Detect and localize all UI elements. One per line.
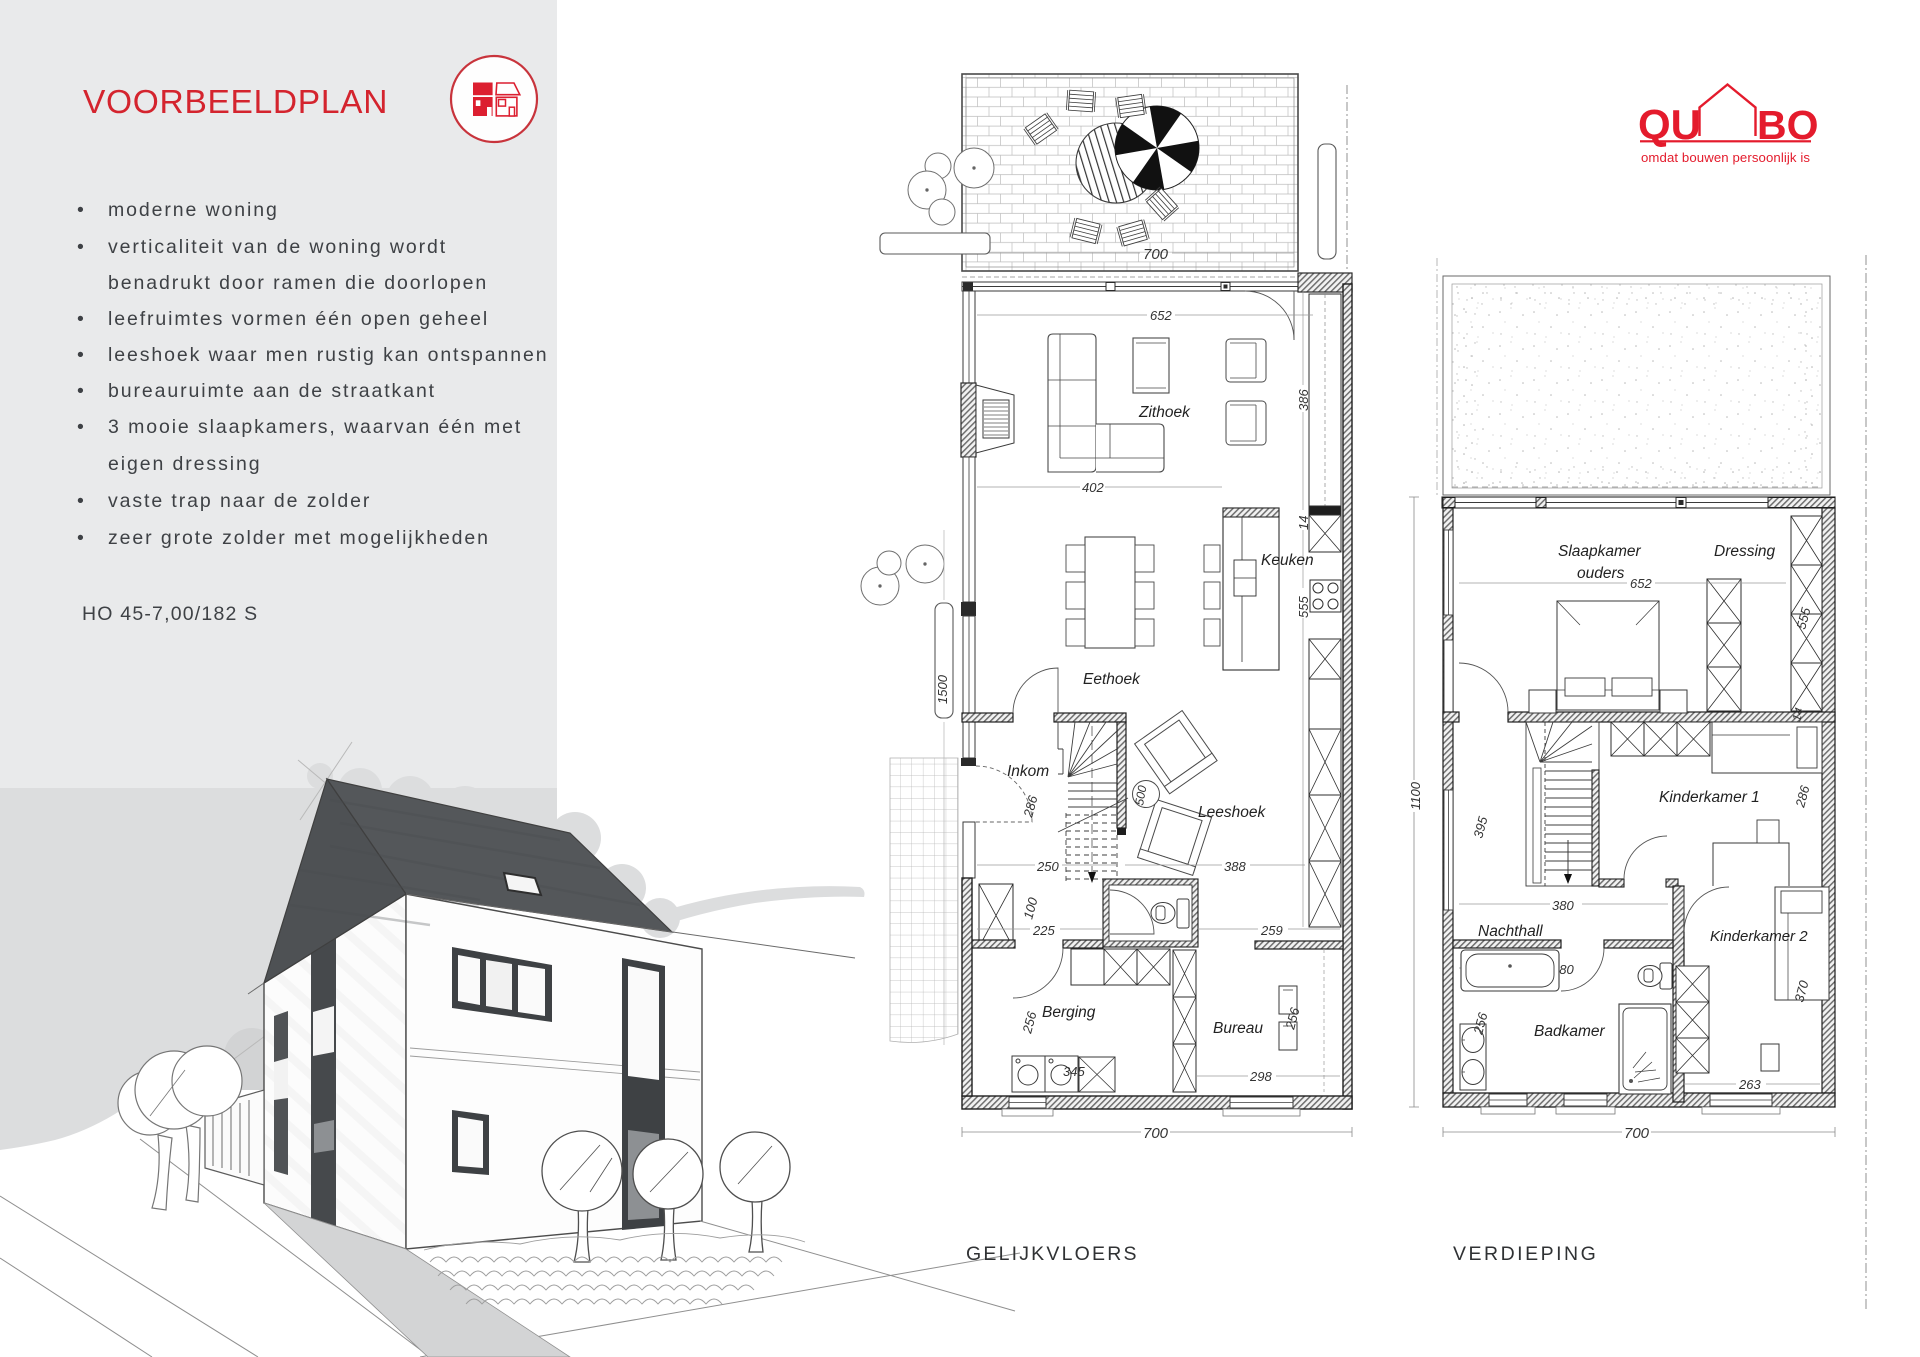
svg-text:386: 386 [1296, 389, 1311, 411]
svg-text:250: 250 [1036, 859, 1059, 874]
svg-text:HO 45-7,00/182 S: HO 45-7,00/182 S [82, 603, 258, 625]
svg-text:286: 286 [1792, 783, 1813, 810]
svg-text:•: • [77, 416, 86, 438]
svg-text:•: • [77, 527, 86, 549]
svg-text:GELIJKVLOERS: GELIJKVLOERS [966, 1243, 1139, 1265]
svg-text:verticaliteit van de woning wo: verticaliteit van de woning wordt [108, 236, 447, 258]
svg-text:zeer grote zolder met mogelijk: zeer grote zolder met mogelijkheden [108, 527, 490, 549]
svg-text:omdat bouwen persoonlijk is: omdat bouwen persoonlijk is [1641, 150, 1810, 165]
svg-text:VOORBEELDPLAN: VOORBEELDPLAN [83, 84, 388, 121]
svg-text:•: • [77, 236, 86, 258]
svg-text:259: 259 [1260, 923, 1283, 938]
svg-text:700: 700 [1143, 246, 1169, 263]
svg-text:•: • [77, 308, 86, 330]
svg-text:555: 555 [1296, 596, 1311, 618]
svg-text:leefruimtes vormen één open ge: leefruimtes vormen één open geheel [108, 308, 489, 330]
svg-text:Slaapkamer: Slaapkamer [1558, 543, 1642, 560]
svg-text:Nachthall: Nachthall [1478, 923, 1543, 940]
svg-text:ouders: ouders [1577, 565, 1625, 582]
svg-text:•: • [77, 199, 86, 221]
svg-text:Inkom: Inkom [1007, 763, 1049, 780]
svg-text:Leeshoek: Leeshoek [1198, 804, 1266, 821]
svg-text:bureauruimte aan de straatkant: bureauruimte aan de straatkant [108, 380, 436, 402]
svg-text:652: 652 [1630, 576, 1652, 591]
svg-text:1100: 1100 [1408, 781, 1423, 810]
svg-text:345: 345 [1063, 1064, 1085, 1079]
svg-text:380: 380 [1552, 898, 1574, 913]
svg-text:moderne woning: moderne woning [108, 199, 279, 221]
svg-text:Badkamer: Badkamer [1534, 1023, 1605, 1040]
svg-text:VERDIEPING: VERDIEPING [1453, 1243, 1598, 1265]
svg-text:leeshoek waar men rustig kan o: leeshoek waar men rustig kan ontspannen [108, 344, 549, 366]
svg-text:1500: 1500 [935, 674, 950, 704]
svg-text:vaste trap naar de zolder: vaste trap naar de zolder [108, 490, 371, 512]
svg-text:eigen dressing: eigen dressing [108, 453, 261, 475]
svg-text:Keuken: Keuken [1261, 552, 1314, 569]
svg-text:286: 286 [1020, 793, 1041, 820]
svg-text:402: 402 [1082, 480, 1104, 495]
svg-text:700: 700 [1624, 1125, 1650, 1142]
svg-text:256: 256 [1019, 1009, 1040, 1036]
svg-text:•: • [77, 490, 86, 512]
svg-text:700: 700 [1143, 1125, 1169, 1142]
svg-text:Kinderkamer 1: Kinderkamer 1 [1659, 789, 1760, 806]
svg-text:225: 225 [1032, 923, 1055, 938]
svg-text:Bureau: Bureau [1213, 1020, 1263, 1037]
svg-text:•: • [77, 380, 86, 402]
svg-text:263: 263 [1738, 1077, 1761, 1092]
svg-text:Berging: Berging [1042, 1004, 1096, 1021]
svg-text:256: 256 [1470, 1010, 1491, 1037]
svg-text:388: 388 [1224, 859, 1246, 874]
svg-text:Kinderkamer 2: Kinderkamer 2 [1710, 928, 1808, 945]
svg-text:652: 652 [1150, 308, 1172, 323]
svg-text:Zithoek: Zithoek [1138, 404, 1191, 421]
svg-text:14: 14 [1296, 516, 1311, 530]
svg-text:Eethoek: Eethoek [1083, 671, 1141, 688]
svg-text:100: 100 [1020, 895, 1040, 921]
svg-text:Dressing: Dressing [1714, 543, 1776, 560]
svg-text:•: • [77, 344, 86, 366]
svg-text:395: 395 [1470, 814, 1490, 840]
svg-text:3 mooie slaapkamers, waarvan é: 3 mooie slaapkamers, waarvan één met [108, 416, 522, 438]
svg-text:benadrukt door ramen die doorl: benadrukt door ramen die doorlopen [108, 272, 488, 294]
svg-text:298: 298 [1249, 1069, 1272, 1084]
